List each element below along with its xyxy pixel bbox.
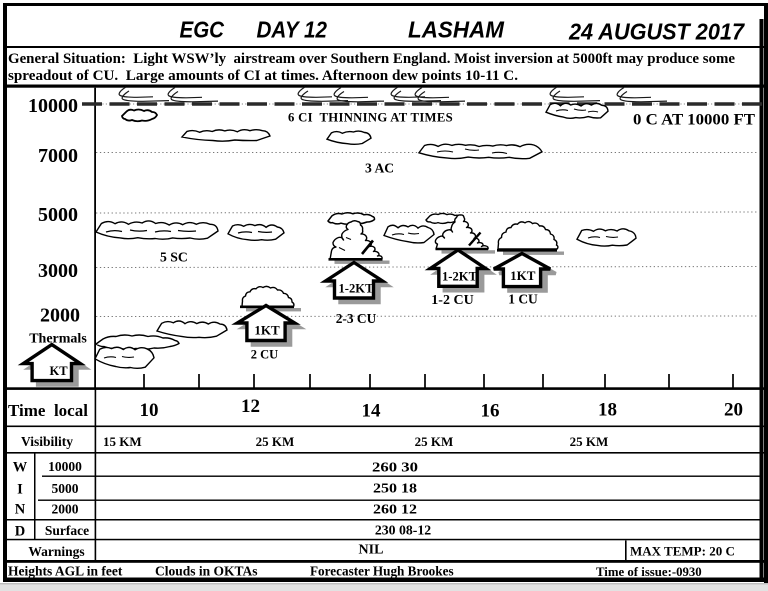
svg-text:2-3 CU: 2-3 CU (336, 311, 377, 326)
svg-text:15 KM: 15 KM (103, 434, 142, 449)
svg-text:Time local: Time local (8, 401, 88, 420)
svg-text:N: N (15, 502, 26, 518)
svg-text:1KT: 1KT (254, 323, 280, 338)
svg-text:Warnings: Warnings (28, 544, 84, 559)
svg-text:0 C AT 10000 FT: 0 C AT 10000 FT (633, 112, 756, 129)
svg-text:D: D (15, 524, 25, 540)
svg-text:3 AC: 3 AC (365, 161, 394, 176)
svg-text:1-2 CU: 1-2 CU (431, 293, 473, 308)
svg-text:2000: 2000 (40, 305, 80, 327)
svg-text:6 CI THINNING AT TIMES: 6 CI THINNING AT TIMES (288, 111, 453, 125)
svg-text:DAY 12: DAY 12 (257, 16, 328, 42)
svg-text:7000: 7000 (38, 145, 78, 167)
svg-text:Time of issue:-0930: Time of issue:-0930 (596, 565, 702, 579)
svg-text:LASHAM: LASHAM (408, 16, 505, 42)
svg-text:Forecaster Hugh Brookes: Forecaster Hugh Brookes (310, 564, 454, 579)
svg-text:2000: 2000 (52, 502, 79, 517)
svg-text:Heights AGL in feet: Heights AGL in feet (8, 564, 123, 579)
svg-text:Visibility: Visibility (21, 434, 73, 449)
svg-text:230 08-12: 230 08-12 (375, 523, 431, 538)
svg-text:EGC: EGC (180, 16, 225, 42)
svg-text:10: 10 (140, 400, 159, 421)
svg-text:1KT: 1KT (510, 268, 536, 283)
svg-text:Surface: Surface (45, 523, 89, 538)
svg-text:12: 12 (241, 396, 260, 417)
svg-text:General Situation: Light WSW’: General Situation: Light WSW’ly airstrea… (8, 51, 736, 67)
svg-text:18: 18 (598, 400, 617, 421)
svg-text:5000: 5000 (38, 204, 78, 226)
svg-text:5000: 5000 (52, 481, 79, 496)
svg-text:Clouds in OKTAs: Clouds in OKTAs (155, 564, 258, 579)
svg-text:260 30: 260 30 (372, 460, 418, 475)
svg-text:260 12: 260 12 (373, 502, 417, 517)
svg-text:KT: KT (49, 364, 68, 378)
svg-text:I: I (17, 482, 23, 498)
svg-text:1-2KT: 1-2KT (442, 270, 478, 284)
svg-text:5 SC: 5 SC (160, 250, 188, 265)
svg-text:20: 20 (724, 400, 743, 421)
svg-text:24 AUGUST 2017: 24 AUGUST 2017 (568, 18, 745, 44)
svg-text:MAX TEMP: 20 C: MAX TEMP: 20 C (630, 544, 735, 559)
svg-text:14: 14 (362, 401, 382, 422)
svg-text:25 KM: 25 KM (256, 434, 295, 449)
svg-text:25 KM: 25 KM (570, 434, 609, 449)
svg-text:10000: 10000 (28, 95, 78, 117)
svg-text:NIL: NIL (359, 543, 384, 558)
svg-text:1 CU: 1 CU (508, 292, 538, 307)
svg-text:250 18: 250 18 (373, 481, 417, 496)
svg-text:16: 16 (481, 401, 500, 422)
svg-text:W: W (13, 460, 28, 476)
svg-text:2 CU: 2 CU (251, 348, 278, 362)
svg-text:10000: 10000 (48, 459, 82, 474)
svg-text:1-2KT: 1-2KT (339, 282, 375, 296)
svg-text:Thermals: Thermals (29, 332, 87, 347)
svg-text:25 KM: 25 KM (415, 434, 454, 449)
svg-text:spreadout of CU. Large amount: spreadout of CU. Large amounts of CI at … (8, 68, 518, 84)
svg-text:3000: 3000 (38, 260, 78, 282)
